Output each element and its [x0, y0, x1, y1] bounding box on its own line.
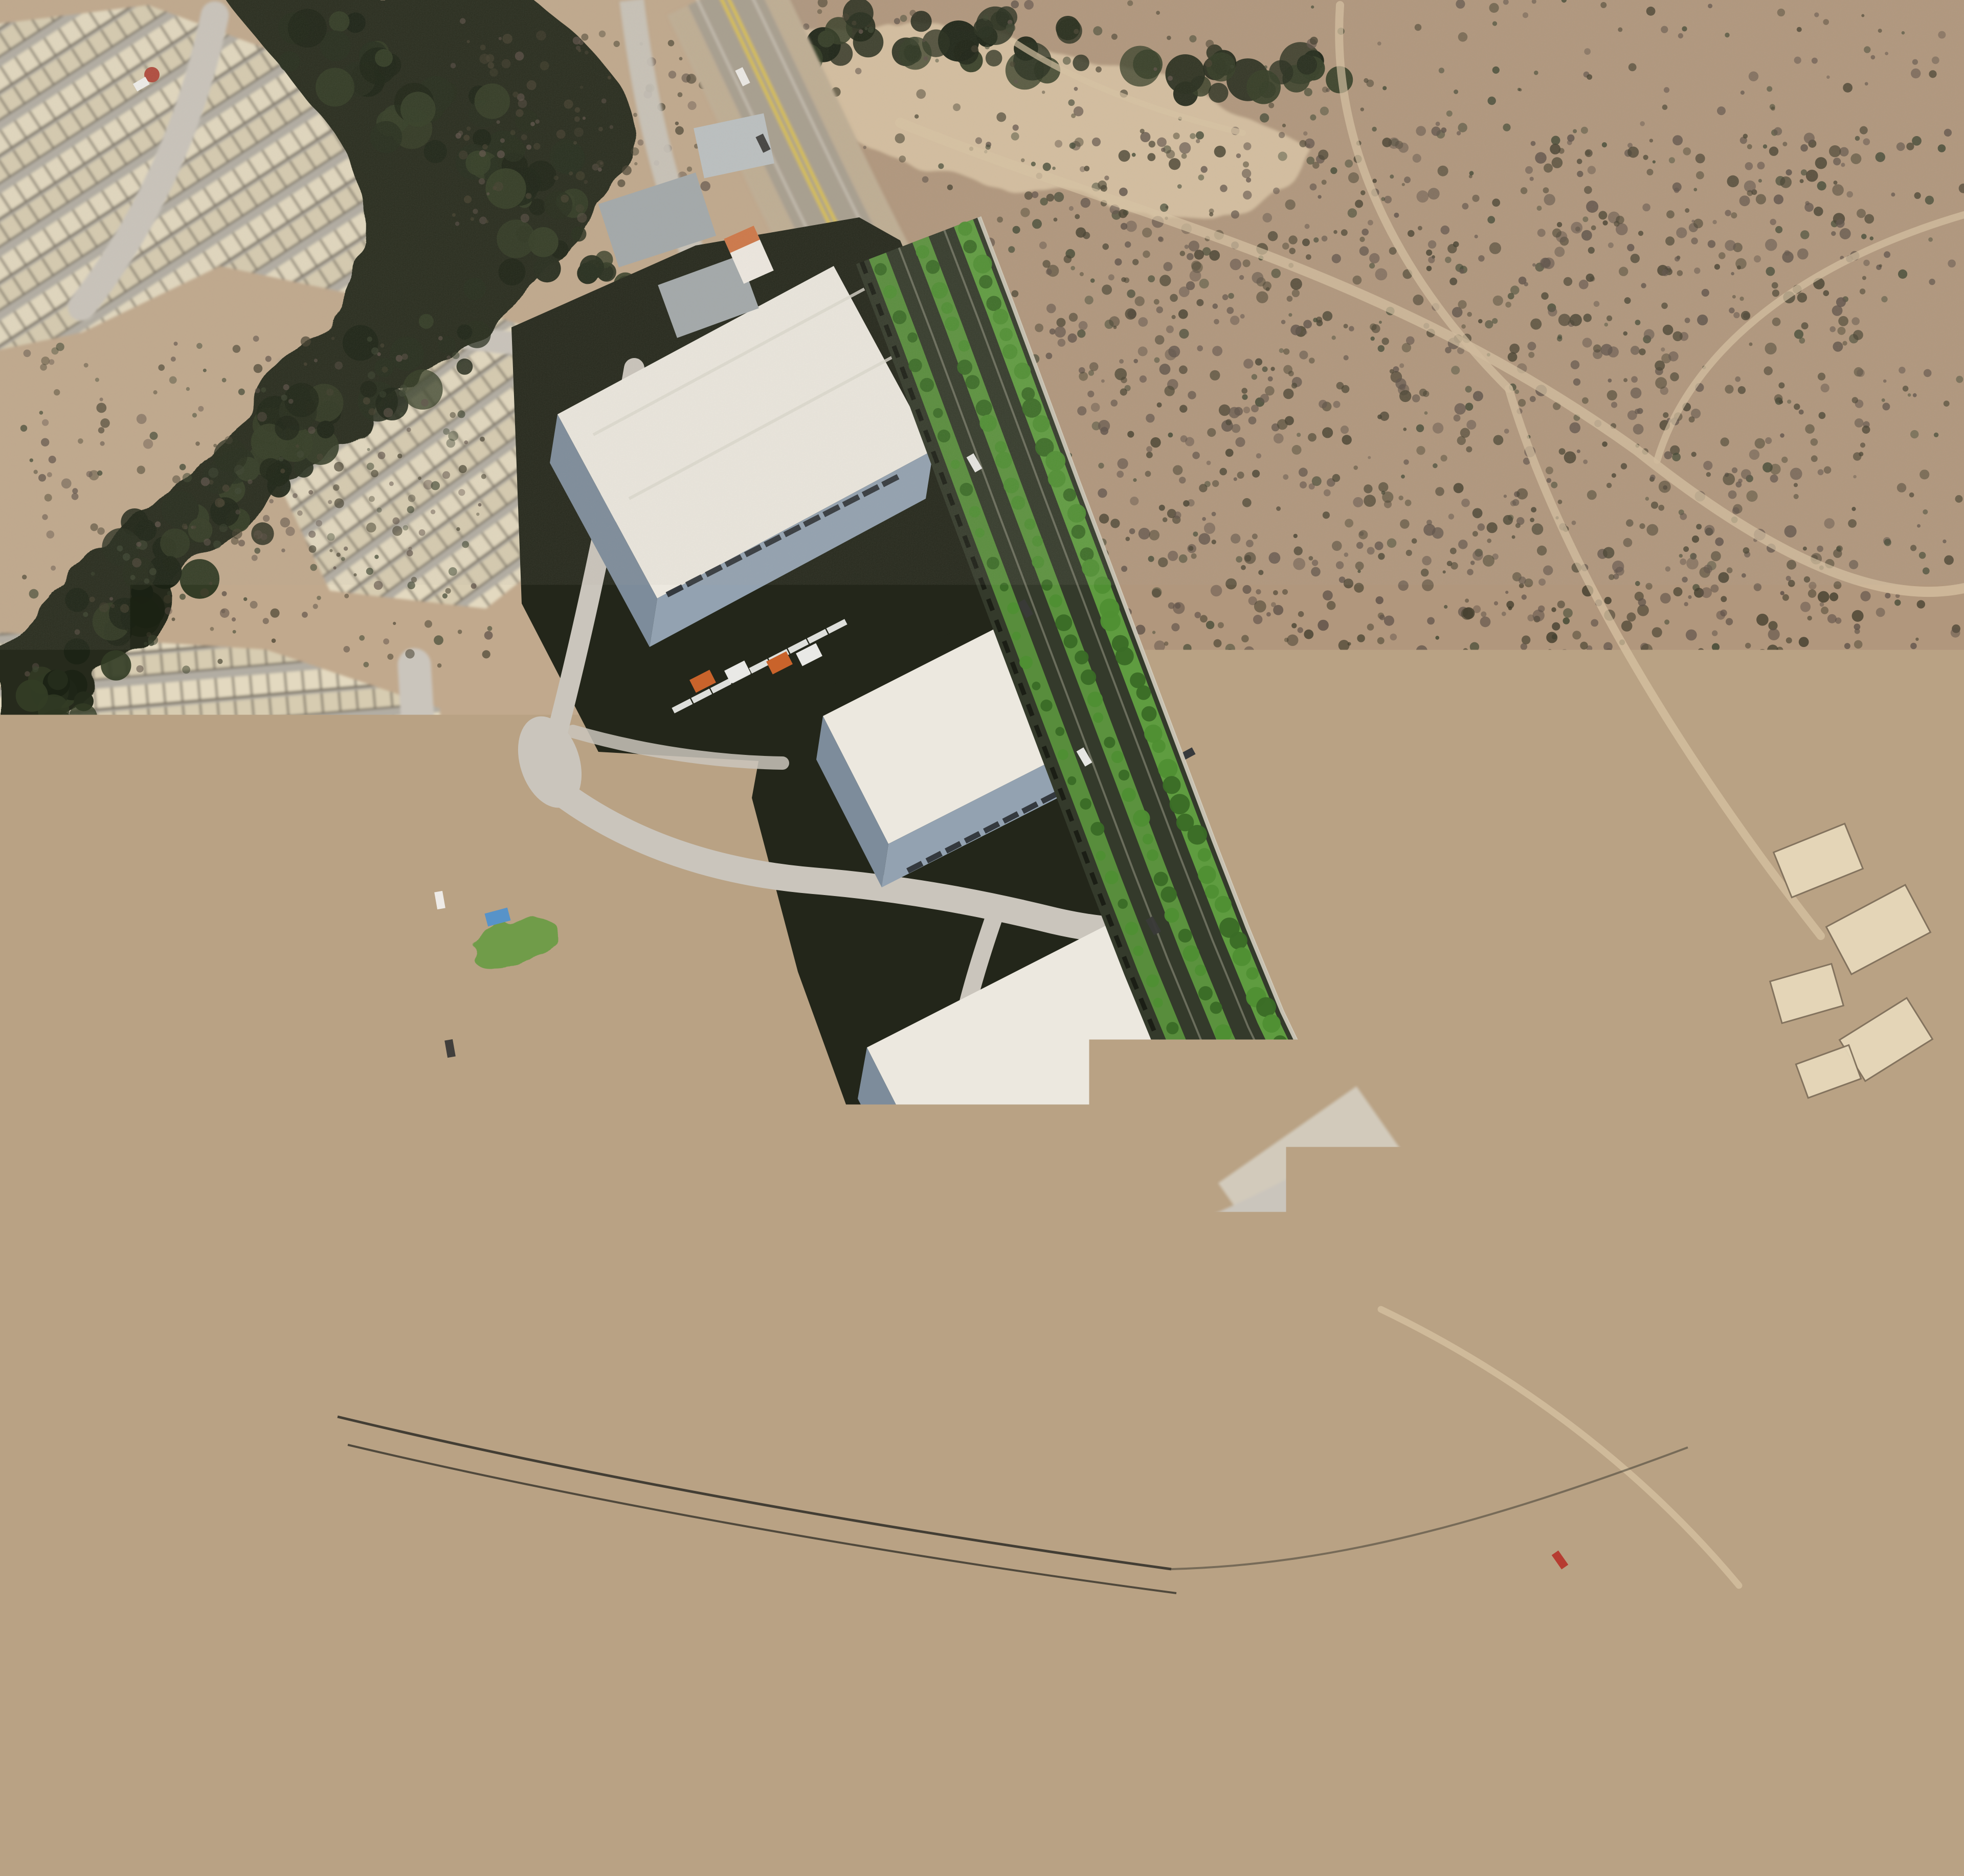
- photo-grain-overlay: [0, 0, 1964, 1876]
- aerial-scene: [0, 0, 1964, 1876]
- aerial-image-canvas: [0, 0, 1964, 1876]
